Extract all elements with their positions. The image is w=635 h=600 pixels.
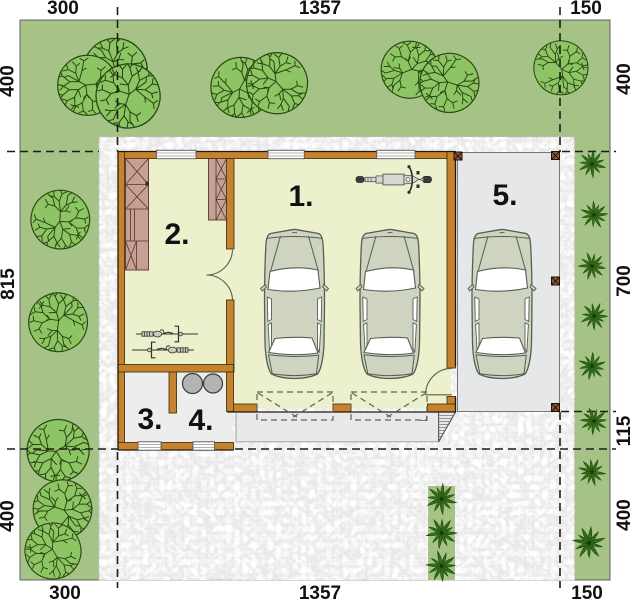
svg-text:3.: 3. xyxy=(137,403,162,436)
svg-text:1.: 1. xyxy=(288,180,313,213)
svg-text:1357: 1357 xyxy=(299,583,341,600)
svg-text:700: 700 xyxy=(614,265,635,297)
svg-text:400: 400 xyxy=(0,65,19,97)
svg-text:300: 300 xyxy=(47,0,79,19)
svg-text:400: 400 xyxy=(0,500,19,532)
svg-text:1357: 1357 xyxy=(299,0,341,19)
svg-text:2.: 2. xyxy=(164,218,189,251)
svg-text:400: 400 xyxy=(614,499,635,531)
svg-text:150: 150 xyxy=(570,0,602,19)
svg-text:115: 115 xyxy=(614,415,635,446)
svg-text:150: 150 xyxy=(571,583,603,600)
svg-text:4.: 4. xyxy=(188,404,213,437)
svg-text:5.: 5. xyxy=(492,179,517,212)
svg-text:815: 815 xyxy=(0,268,19,300)
svg-text:400: 400 xyxy=(614,63,635,95)
svg-text:300: 300 xyxy=(49,583,81,600)
